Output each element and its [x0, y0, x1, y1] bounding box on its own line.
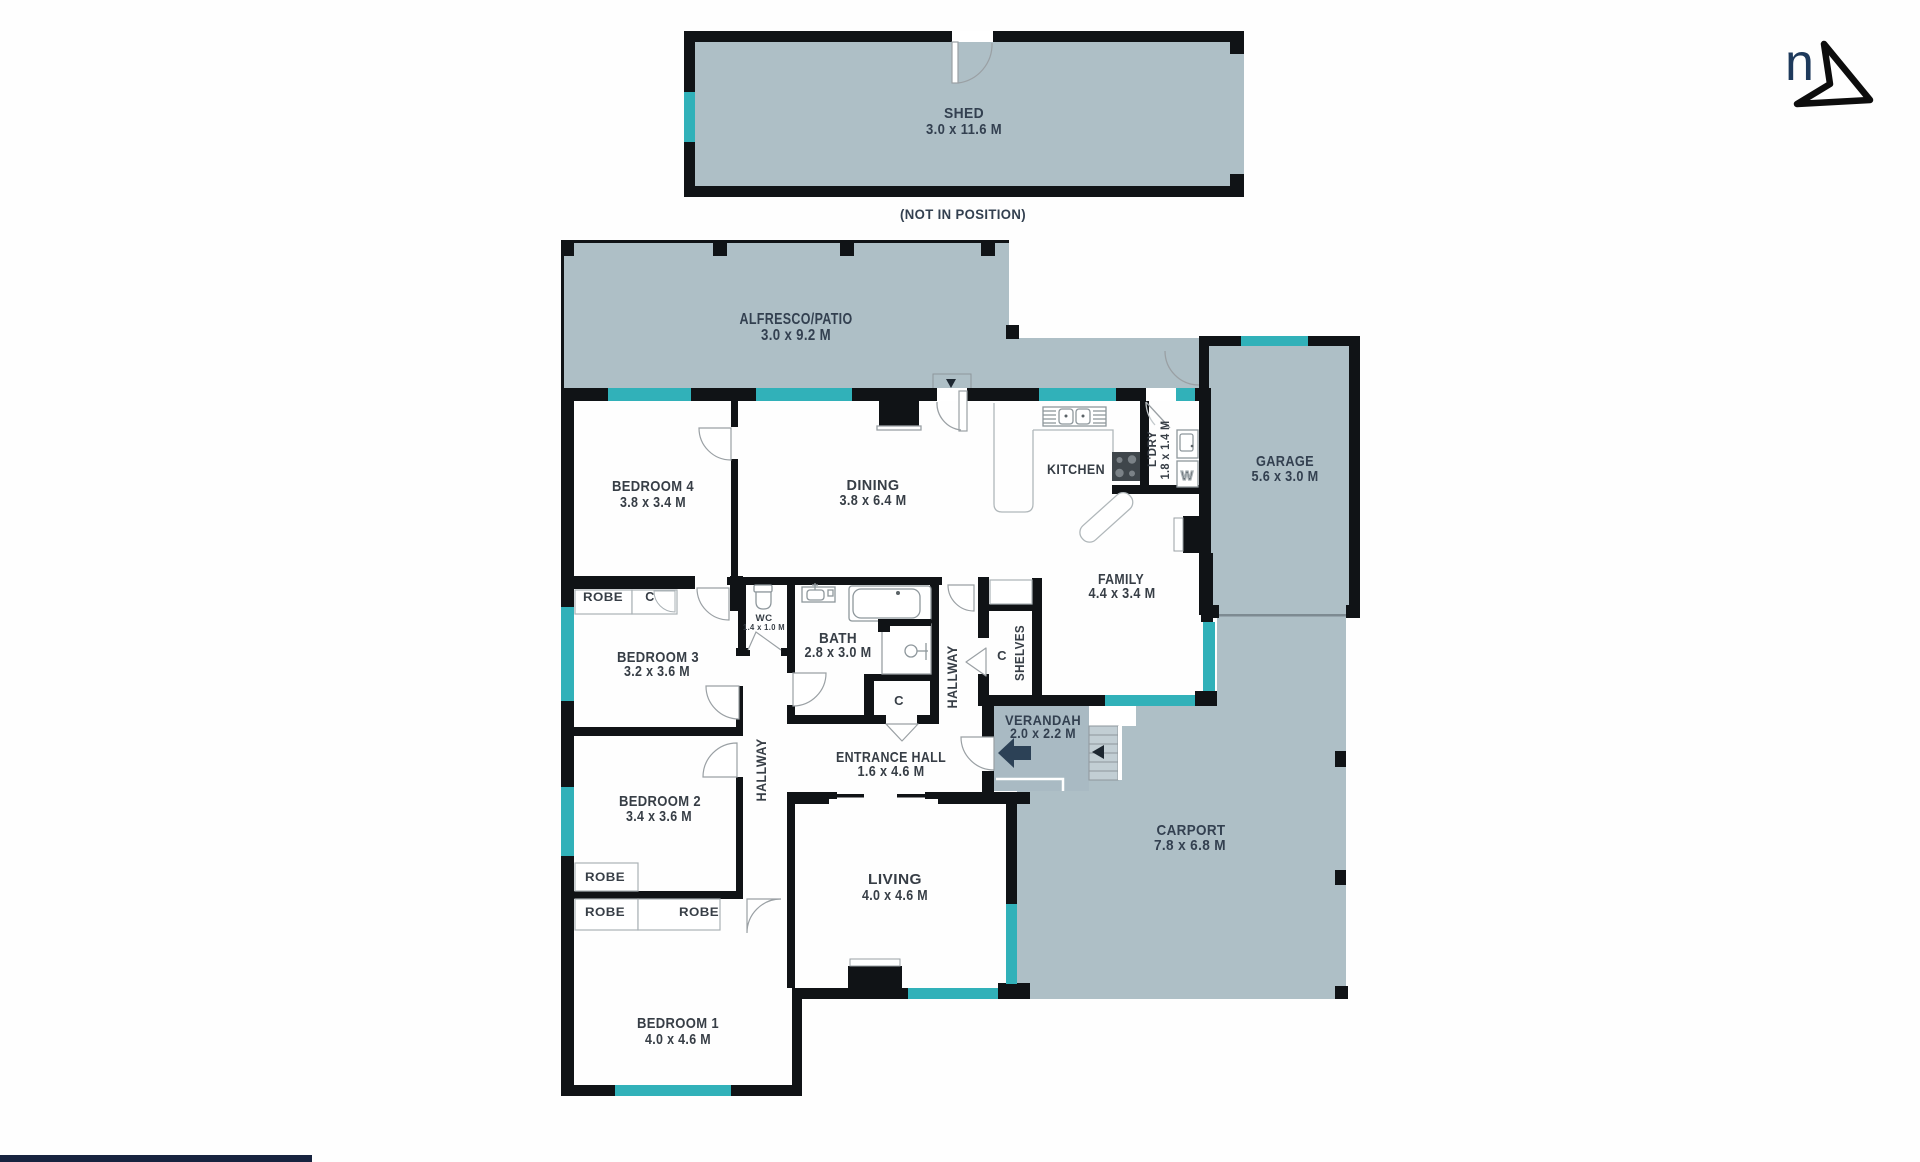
- svg-text:ROBE: ROBE: [583, 590, 623, 604]
- svg-text:KITCHEN: KITCHEN: [1047, 461, 1105, 477]
- svg-text:1.8 x 1.4 M: 1.8 x 1.4 M: [1158, 421, 1172, 480]
- svg-text:LIVING: LIVING: [868, 871, 922, 888]
- svg-text:ROBE: ROBE: [585, 870, 625, 884]
- svg-text:HALLWAY: HALLWAY: [945, 646, 960, 709]
- svg-text:3.8 x 3.4 M: 3.8 x 3.4 M: [620, 494, 686, 511]
- svg-text:2.0 x 2.2 M: 2.0 x 2.2 M: [1010, 725, 1076, 741]
- svg-text:4.0 x 4.6 M: 4.0 x 4.6 M: [645, 1031, 711, 1048]
- svg-text:W: W: [1181, 468, 1194, 483]
- svg-text:3.4 x 3.6 M: 3.4 x 3.6 M: [626, 808, 692, 825]
- svg-text:C: C: [997, 648, 1007, 663]
- svg-text:3.8 x 6.4 M: 3.8 x 6.4 M: [840, 492, 907, 509]
- svg-text:4.4 x 3.4 M: 4.4 x 3.4 M: [1089, 585, 1156, 602]
- svg-text:3.2 x 3.6 M: 3.2 x 3.6 M: [624, 663, 690, 680]
- svg-text:1.6 x 4.6 M: 1.6 x 4.6 M: [858, 763, 925, 780]
- svg-text:ROBE: ROBE: [679, 905, 719, 919]
- svg-text:1.4 x 1.0 M: 1.4 x 1.0 M: [743, 622, 785, 632]
- svg-text:ALFRESCO/PATIO: ALFRESCO/PATIO: [740, 311, 853, 328]
- svg-text:n: n: [1785, 34, 1814, 92]
- svg-text:7.8 x 6.8 M: 7.8 x 6.8 M: [1154, 837, 1226, 854]
- svg-text:ROBE: ROBE: [585, 905, 625, 919]
- svg-text:2.8 x 3.0 M: 2.8 x 3.0 M: [805, 644, 872, 661]
- svg-text:BEDROOM 4: BEDROOM 4: [612, 478, 694, 495]
- svg-text:3.0 x 9.2 M: 3.0 x 9.2 M: [761, 327, 831, 344]
- svg-text:BEDROOM 1: BEDROOM 1: [637, 1015, 719, 1032]
- svg-text:(NOT IN POSITION): (NOT IN POSITION): [900, 206, 1026, 222]
- svg-text:5.6 x 3.0 M: 5.6 x 3.0 M: [1252, 468, 1319, 485]
- svg-text:HALLWAY: HALLWAY: [754, 739, 769, 802]
- svg-text:C: C: [645, 590, 654, 604]
- svg-text:SHED: SHED: [944, 105, 984, 122]
- svg-text:C: C: [894, 693, 904, 708]
- svg-text:SHELVES: SHELVES: [1013, 625, 1027, 681]
- svg-text:4.0 x 4.6 M: 4.0 x 4.6 M: [862, 887, 928, 904]
- svg-text:L'DRY: L'DRY: [1145, 431, 1159, 467]
- svg-text:3.0 x 11.6 M: 3.0 x 11.6 M: [926, 121, 1002, 138]
